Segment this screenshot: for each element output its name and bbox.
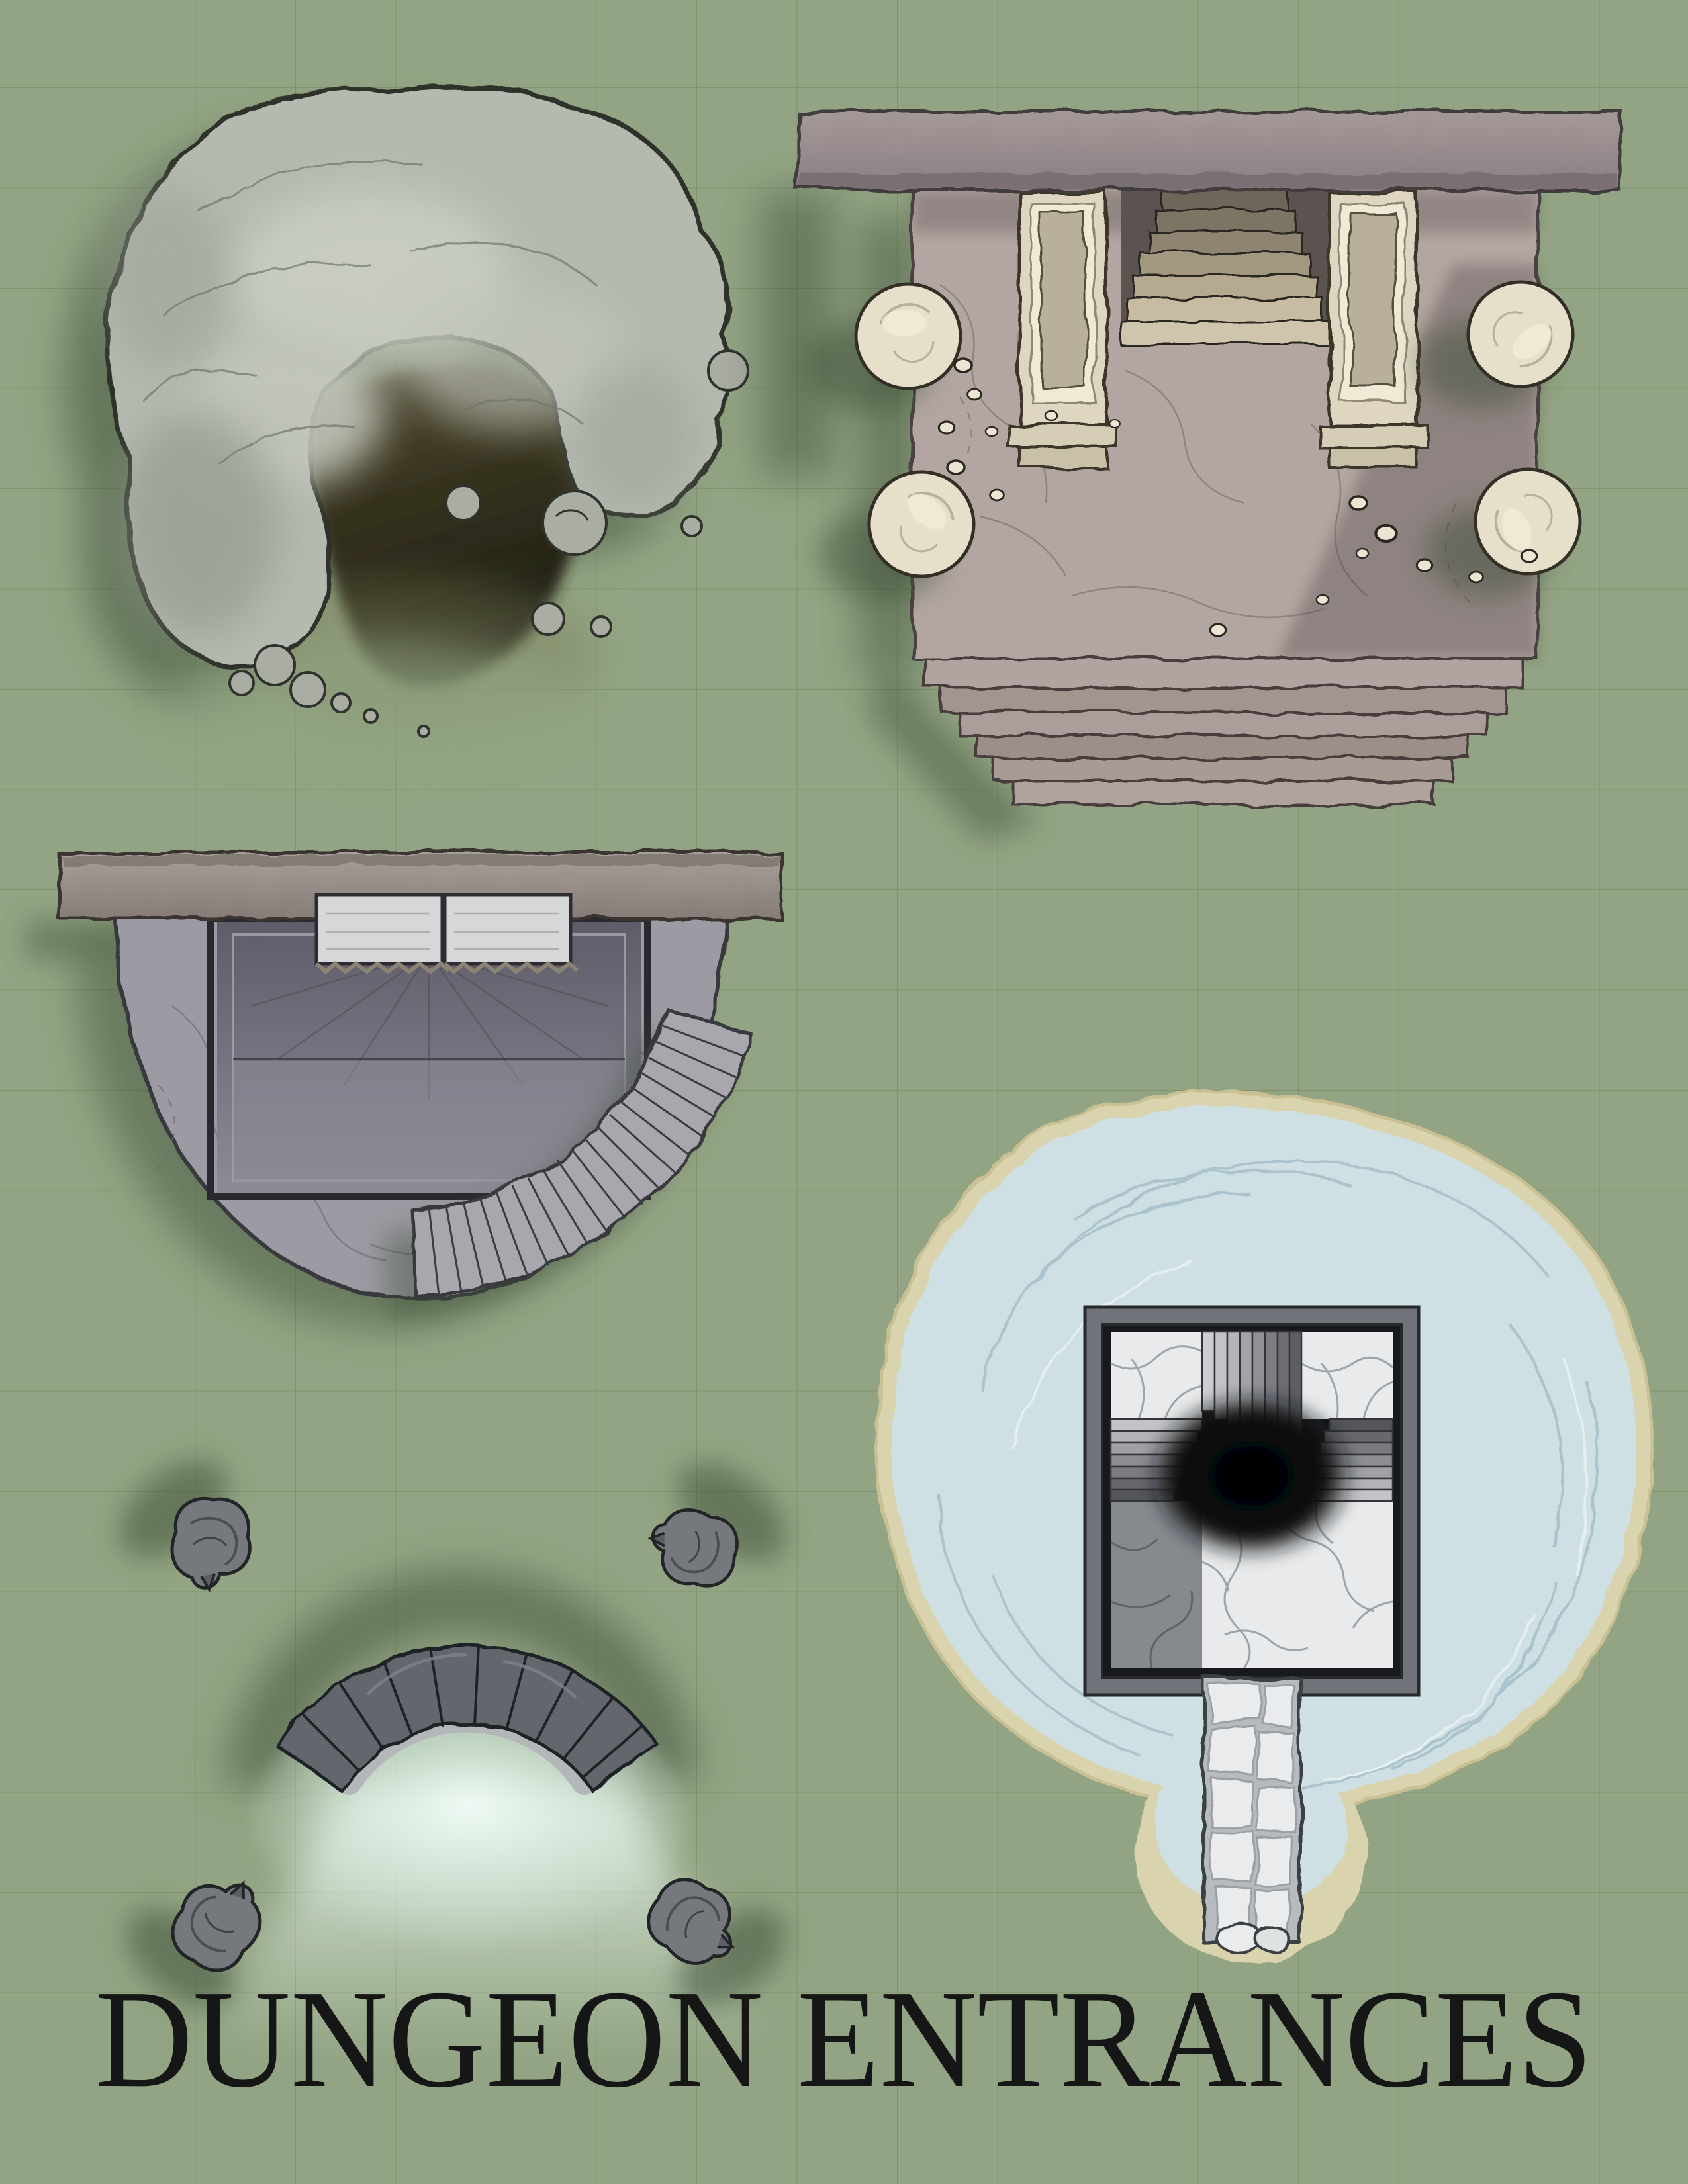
battlemap-sheet: DUNGEON ENTRANCES: [0, 0, 1688, 2184]
flagstone-pad-tl: [1111, 1332, 1202, 1419]
flagstone-walkway: [1203, 1678, 1300, 1952]
temple-bottom-steps: [925, 659, 1523, 805]
temple-column-base-left: [1009, 192, 1117, 467]
flagstone-pad-tr: [1301, 1332, 1393, 1419]
map-title: DUNGEON ENTRANCES: [95, 1961, 1593, 2116]
temple-column-base-right: [1319, 192, 1427, 467]
stairwell-dark-hole: [1145, 1390, 1357, 1562]
pit-double-doors: [316, 895, 577, 972]
temple-recessed-stairs: [1121, 190, 1329, 345]
